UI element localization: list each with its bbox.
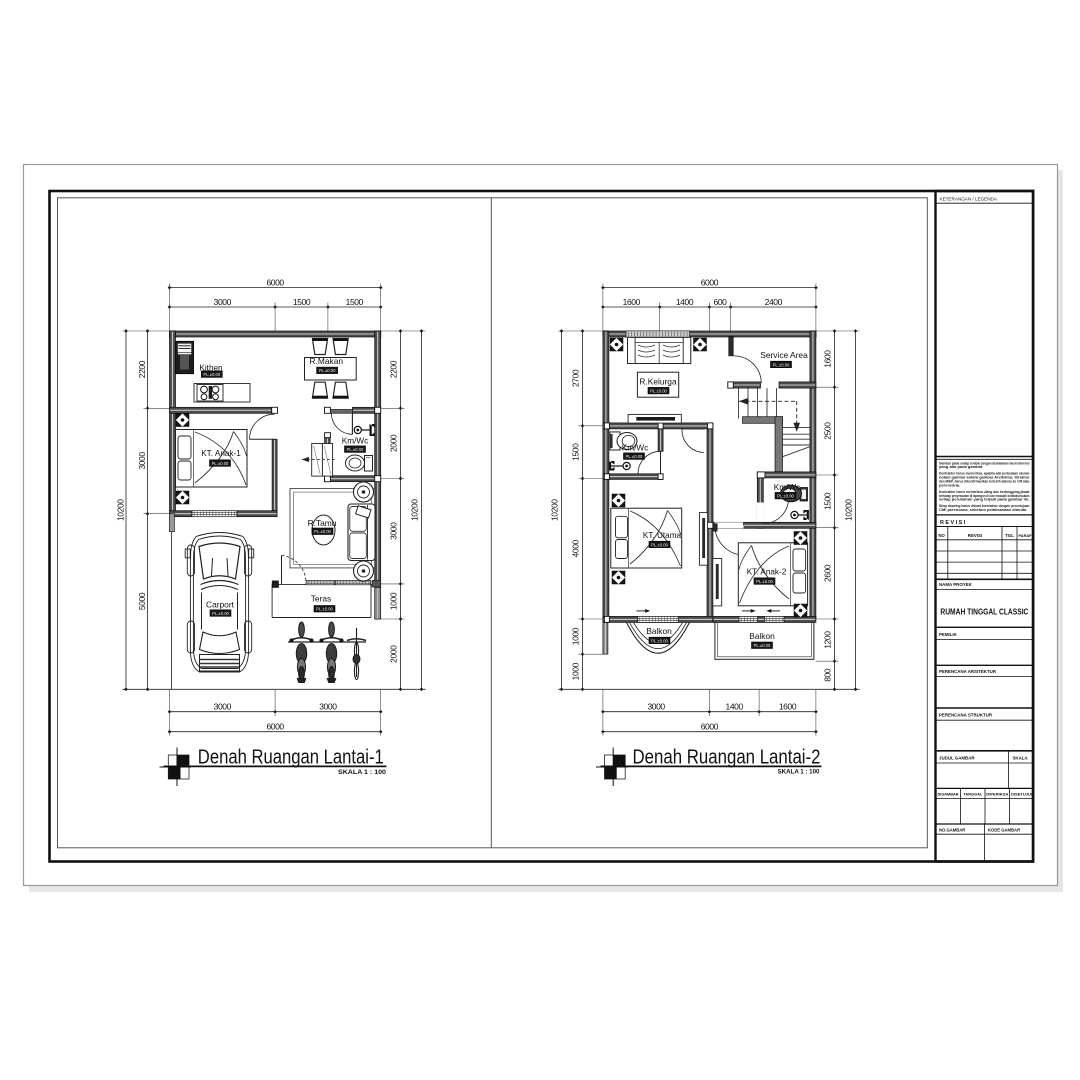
svg-text:PL.±0.00: PL.±0.00	[773, 362, 790, 367]
svg-text:PL.±0.00: PL.±0.00	[212, 611, 229, 616]
svg-text:1400: 1400	[676, 297, 694, 307]
svg-text:4000: 4000	[571, 539, 581, 557]
svg-text:1600: 1600	[779, 702, 797, 712]
svg-text:PL.±0.00: PL.±0.00	[203, 372, 220, 377]
svg-text:800: 800	[823, 668, 833, 682]
svg-text:PL.±0.00: PL.±0.00	[347, 447, 364, 452]
svg-text:R.Kelurga: R.Kelurga	[639, 377, 677, 387]
svg-text:DIPERIKSA: DIPERIKSA	[986, 791, 1008, 796]
svg-text:1600: 1600	[623, 297, 641, 307]
svg-text:10200: 10200	[410, 499, 420, 521]
svg-text:SKALA: SKALA	[1013, 756, 1029, 761]
svg-text:10200: 10200	[116, 499, 126, 521]
svg-text:1000: 1000	[571, 627, 581, 645]
svg-text:Km/Wc: Km/Wc	[622, 444, 648, 453]
svg-text:KT. Anak-2: KT. Anak-2	[747, 568, 787, 577]
svg-text:R.Makan: R.Makan	[310, 356, 344, 366]
svg-text:3000: 3000	[214, 297, 232, 307]
svg-text:PERENCANA ARSITEKTUR: PERENCANA ARSITEKTUR	[939, 669, 997, 674]
svg-text:SKALA 1 : 100: SKALA 1 : 100	[778, 768, 820, 775]
svg-text:1000: 1000	[571, 662, 581, 680]
svg-text:setiap perubahan yang terjadi: setiap perubahan yang terjadi pada gamba…	[939, 497, 1030, 502]
svg-text:5000: 5000	[137, 592, 147, 610]
svg-text:6000: 6000	[701, 278, 719, 288]
svg-text:DISETUJUI: DISETUJUI	[1011, 791, 1032, 796]
svg-text:Denah Ruangan Lantai-2: Denah Ruangan Lantai-2	[633, 745, 821, 768]
svg-text:KT. Utama: KT. Utama	[643, 531, 682, 540]
svg-text:PARAF: PARAF	[1019, 533, 1033, 538]
svg-text:TANGGAL: TANGGAL	[963, 791, 983, 796]
svg-text:perencana.: perencana.	[939, 482, 960, 487]
svg-text:PL.±0.00: PL.±0.00	[314, 529, 331, 534]
svg-text:PERENCANA STRUKTUR: PERENCANA STRUKTUR	[939, 713, 993, 718]
svg-text:NAMA PROYEK: NAMA PROYEK	[939, 582, 973, 587]
svg-text:SKALA 1 : 100: SKALA 1 : 100	[338, 769, 386, 776]
svg-text:CM/ perencana, sebelum pelaksa: CM/ perencana, sebelum pelaksanaan dimul…	[939, 507, 1027, 512]
svg-text:2400: 2400	[765, 297, 783, 307]
svg-text:PL.±0.00: PL.±0.00	[626, 454, 643, 459]
svg-text:Denah Ruangan Lantai-1: Denah Ruangan Lantai-1	[198, 745, 384, 768]
svg-text:R E V I S I: R E V I S I	[940, 520, 966, 526]
svg-text:Km/Wc: Km/Wc	[774, 483, 800, 492]
svg-text:KODE GAMBAR: KODE GAMBAR	[988, 828, 1020, 833]
svg-text:10200: 10200	[550, 499, 560, 521]
svg-text:1000: 1000	[389, 592, 399, 610]
svg-text:TGL: TGL	[1005, 533, 1014, 538]
svg-text:1500: 1500	[346, 297, 364, 307]
svg-text:2500: 2500	[823, 422, 833, 440]
svg-text:2000: 2000	[389, 645, 399, 663]
svg-text:PL.±0.00: PL.±0.00	[777, 494, 794, 499]
svg-text:DIGAMBAR: DIGAMBAR	[938, 791, 959, 796]
svg-text:Km/Wc: Km/Wc	[342, 437, 368, 446]
svg-text:3000: 3000	[137, 452, 147, 470]
svg-text:PL.±0.00: PL.±0.00	[756, 579, 773, 584]
svg-text:10200: 10200	[844, 499, 854, 521]
svg-text:JUDUL GAMBAR: JUDUL GAMBAR	[939, 756, 975, 761]
svg-text:600: 600	[714, 297, 728, 307]
svg-text:Balkon: Balkon	[749, 631, 775, 641]
svg-text:Teras: Teras	[311, 593, 331, 603]
svg-text:3000: 3000	[647, 702, 665, 712]
svg-text:PEMILIK: PEMILIK	[939, 632, 958, 637]
svg-text:PL.±0.00: PL.±0.00	[754, 643, 771, 648]
svg-text:6000: 6000	[266, 278, 284, 288]
svg-text:yang ada pada gambar.: yang ada pada gambar.	[939, 464, 983, 469]
svg-text:1400: 1400	[726, 702, 744, 712]
svg-text:Service Area: Service Area	[760, 350, 808, 360]
svg-text:3000: 3000	[389, 522, 399, 540]
svg-text:KETERANGAN / LEGENDA: KETERANGAN / LEGENDA	[940, 197, 998, 202]
svg-text:2200: 2200	[137, 360, 147, 378]
svg-text:KT. Anak-1: KT. Anak-1	[201, 449, 241, 458]
svg-text:NO: NO	[938, 533, 945, 538]
svg-text:PL.±0.00: PL.±0.00	[650, 389, 667, 394]
svg-text:NO.GAMBAR: NO.GAMBAR	[939, 828, 965, 833]
svg-text:6000: 6000	[701, 722, 719, 732]
svg-text:1600: 1600	[823, 350, 833, 368]
svg-text:PL.±0.00: PL.±0.00	[319, 368, 336, 373]
svg-text:RUMAH TINGGAL CLASSIC: RUMAH TINGGAL CLASSIC	[940, 607, 1028, 617]
svg-text:Carport: Carport	[206, 599, 235, 609]
svg-text:PL.±0.00: PL.±0.00	[316, 607, 333, 612]
svg-text:2000: 2000	[389, 434, 399, 452]
svg-text:3000: 3000	[214, 702, 232, 712]
svg-text:1500: 1500	[571, 443, 581, 461]
svg-text:1200: 1200	[823, 631, 833, 649]
svg-text:Balkon: Balkon	[646, 626, 672, 636]
svg-text:PL.±0.00: PL.±0.00	[651, 542, 668, 547]
svg-text:3000: 3000	[319, 702, 337, 712]
svg-text:2700: 2700	[571, 369, 581, 387]
svg-text:2200: 2200	[389, 360, 399, 378]
svg-text:1500: 1500	[293, 297, 311, 307]
svg-text:2600: 2600	[823, 564, 833, 582]
svg-text:REVISI: REVISI	[968, 533, 982, 538]
svg-text:1500: 1500	[823, 492, 833, 510]
svg-text:PL.±0.00: PL.±0.00	[651, 638, 668, 643]
svg-text:PL.±0.00: PL.±0.00	[212, 461, 229, 466]
svg-text:R.Tamu: R.Tamu	[308, 518, 337, 528]
svg-text:6000: 6000	[266, 722, 284, 732]
